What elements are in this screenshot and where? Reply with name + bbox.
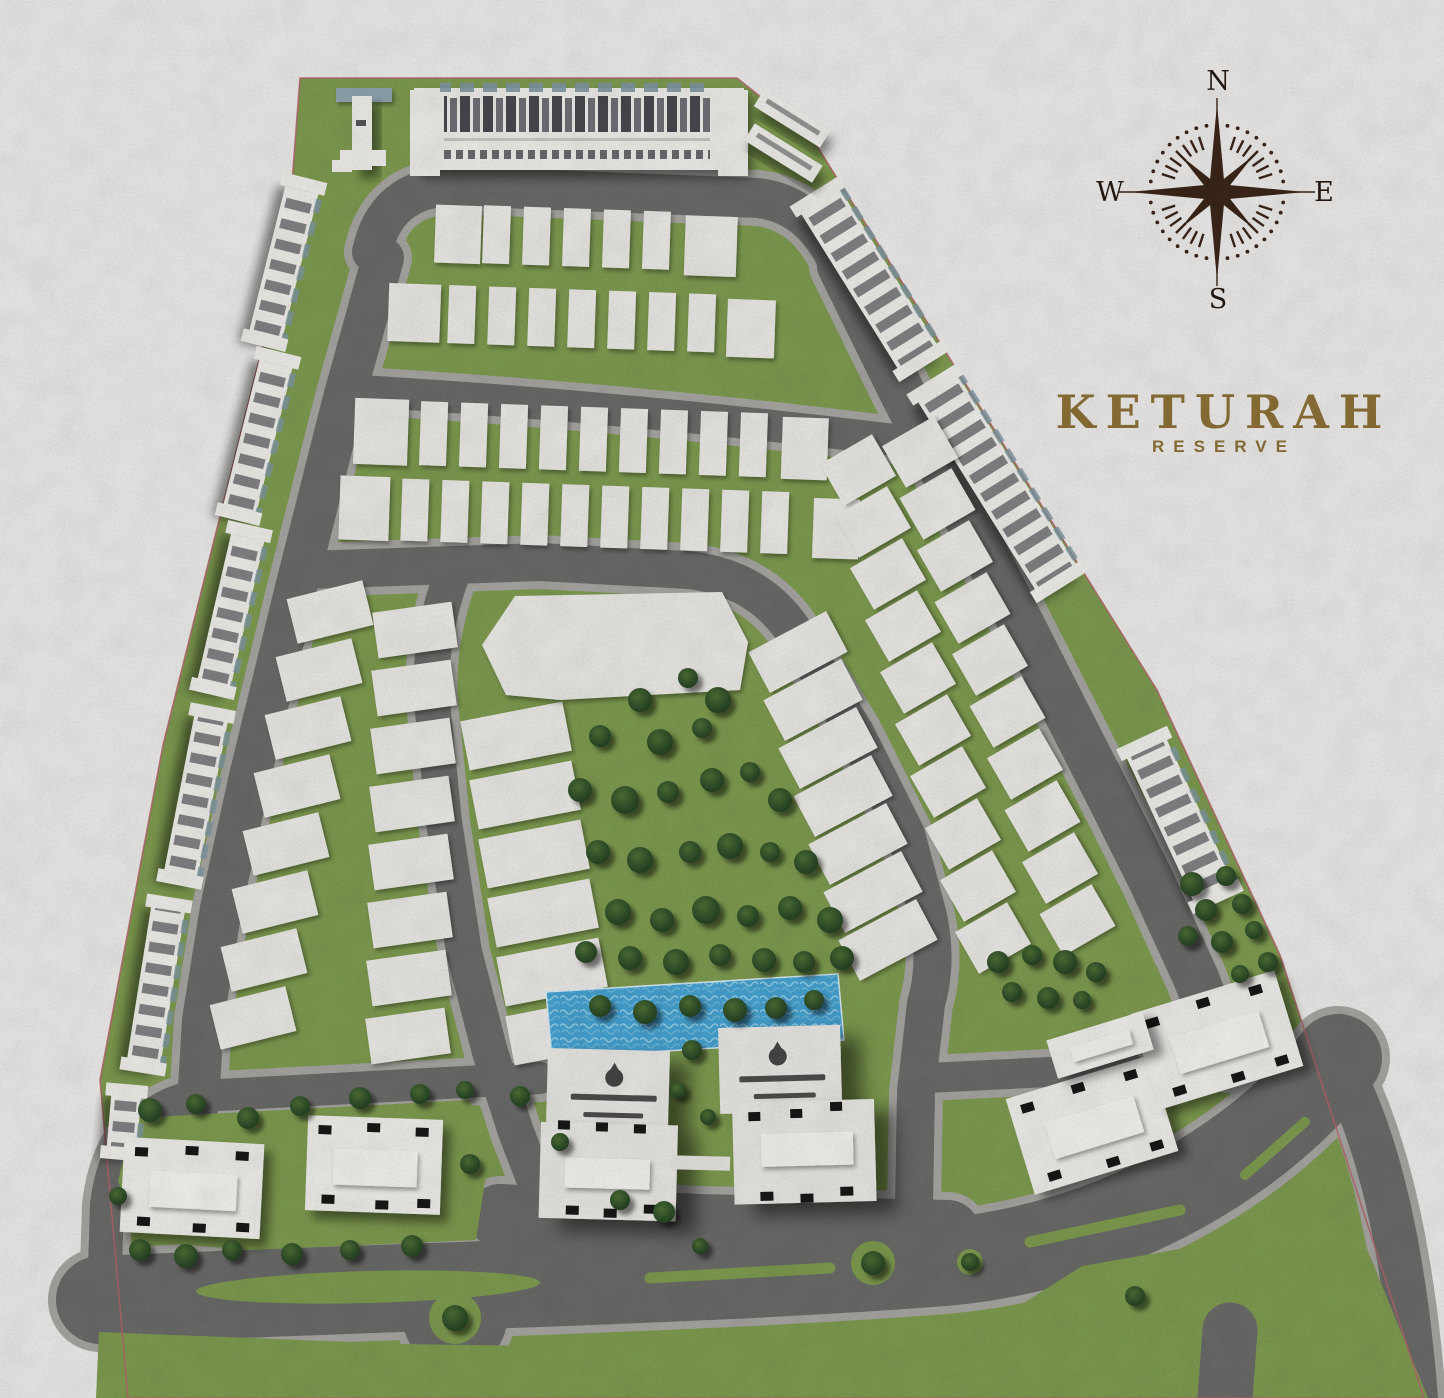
stucco-texture-fine xyxy=(0,0,1444,1398)
masterplan-page: N E S W KETURAH RESERVE xyxy=(0,0,1444,1398)
masterplan-canvas: N E S W KETURAH RESERVE xyxy=(0,0,1444,1398)
